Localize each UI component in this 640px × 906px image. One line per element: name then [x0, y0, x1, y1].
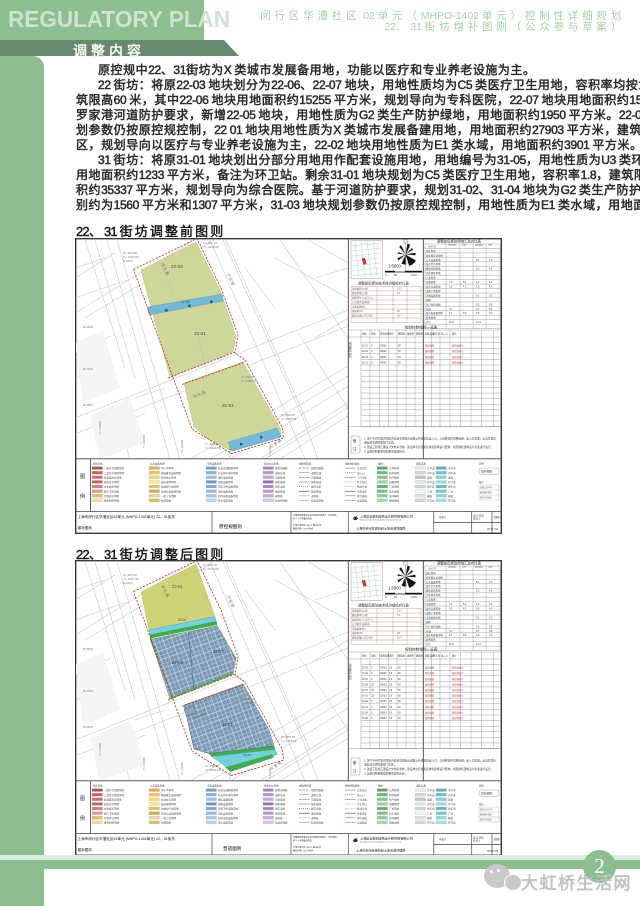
svg-text:社会停车场库用地: 社会停车场库用地 — [218, 471, 239, 475]
svg-text:制图人: 制图人 — [494, 837, 502, 841]
svg-text:娱乐康体用地: 娱乐康体用地 — [161, 480, 177, 484]
svg-text:商业办公用地: 商业办公用地 — [264, 462, 279, 466]
svg-text:支路: 支路 — [448, 797, 454, 801]
svg-text:22-01: 22-01 — [194, 331, 206, 336]
svg-text:苗圃用地: 苗圃用地 — [389, 802, 400, 806]
svg-text:规划控制要素: 规划控制要素 — [345, 462, 360, 466]
svg-text:广场: 广场 — [448, 811, 454, 815]
svg-text:公共通道: 公共通道 — [357, 499, 368, 503]
svg-text:仓储用地: 仓储用地 — [426, 280, 436, 284]
svg-text:上海市闵行区规划和土地资源管理局: 上海市闵行区规划和土地资源管理局 — [356, 526, 406, 531]
svg-text:道路交通: 道路交通 — [416, 784, 426, 788]
svg-text:滨河绿地: 滨河绿地 — [389, 494, 400, 498]
svg-text:地块界线: 地块界线 — [311, 811, 322, 815]
svg-text:T-13400: T-13400 — [228, 768, 232, 779]
svg-text:24903: 24903 — [380, 362, 387, 364]
svg-text:市政设施用地: 市政设施用地 — [426, 615, 441, 619]
svg-text:31-05: 31-05 — [362, 718, 369, 720]
svg-text:居住用地: 居住用地 — [426, 571, 436, 575]
svg-text:排水设施用地: 排水设施用地 — [218, 499, 234, 503]
svg-text:31-04: 31-04 — [362, 712, 369, 714]
svg-text:规划范围线: 规划范围线 — [275, 466, 288, 470]
svg-text:城市发展备用地: 城市发展备用地 — [426, 311, 443, 315]
svg-text:制图人: 制图人 — [494, 515, 502, 519]
svg-text:用地面积(公顷): 用地面积(公顷) — [352, 287, 368, 291]
svg-text:Shanghai Fudan Planning Archit: Shanghai Fudan Planning Architectural De… — [360, 519, 401, 522]
svg-text:市政设施用地: 市政设施用地 — [207, 784, 222, 788]
svg-text:22-04: 22-04 — [178, 618, 186, 622]
svg-text:环卫站: 环卫站 — [448, 821, 456, 825]
svg-text:上海市闵行区华漕社区02单元 (MHPO-1402单元) 2: 上海市闵行区华漕社区02单元 (MHPO-1402单元) 22、31街坊 — [78, 836, 176, 841]
svg-text:100m: 100m — [411, 595, 418, 599]
svg-text:备注: 备注 — [479, 802, 484, 806]
svg-text:B-2800: B-2800 — [83, 725, 93, 729]
svg-text:1. 地下空间开发时须结合轨道交通站点设置公共通道及出入口，: 1. 地下空间开发时须结合轨道交通站点设置公共通道及出入口，与地铁站厅层相连通，… — [364, 437, 496, 441]
svg-text:建设用地(公顷): 建设用地(公顷) — [352, 613, 368, 617]
svg-text:绿地率(%): 绿地率(%) — [352, 631, 363, 635]
svg-text:非机动车: 非机动车 — [357, 811, 368, 815]
svg-text:二类住宅组团用地: 二类住宅组团用地 — [104, 471, 125, 475]
svg-text:主干道: 主干道 — [448, 466, 456, 470]
svg-text:市政设施用地: 市政设施用地 — [207, 462, 222, 466]
svg-text:河道蓝线: 河道蓝线 — [275, 475, 286, 479]
svg-text:2. 建设工程施工图设计文件审查前，建设单位应当落实绿色建筑: 2. 建设工程施工图设计文件审查前，建设单位应当落实绿色建筑设计要求，按照绿色建… — [364, 445, 493, 449]
svg-text:绿化绿线: 绿化绿线 — [275, 802, 286, 806]
svg-text:Y=-3485.74: Y=-3485.74 — [241, 701, 257, 705]
svg-text:普适图则: 普适图则 — [223, 845, 242, 852]
svg-text:附属绿地: 附属绿地 — [389, 499, 400, 503]
svg-text:高压走廊: 高压走廊 — [275, 807, 286, 811]
svg-text:行政办公用地: 行政办公用地 — [104, 816, 120, 820]
svg-text:31-03: 31-03 — [362, 707, 369, 709]
svg-text:枢纽: 枢纽 — [448, 816, 454, 820]
svg-text:附属绿地: 附属绿地 — [389, 821, 400, 825]
svg-text:绿化绿线: 绿化绿线 — [311, 480, 322, 484]
svg-text:出入口: 出入口 — [357, 793, 365, 797]
svg-text:医疗卫生用地: 医疗卫生用地 — [104, 811, 120, 815]
svg-text:公共设施用地: 公共设施用地 — [150, 784, 165, 788]
svg-text:2017.08: 2017.08 — [487, 849, 498, 853]
svg-text:供应设施用地: 供应设施用地 — [218, 475, 234, 479]
svg-text:出入口: 出入口 — [357, 471, 365, 475]
svg-text:B-2700: B-2700 — [83, 367, 93, 371]
svg-text:枢纽: 枢纽 — [427, 494, 433, 498]
svg-text:轨道控制线: 轨道控制线 — [311, 821, 324, 825]
svg-text:其他市政设施用地: 其他市政设施用地 — [218, 494, 239, 498]
svg-text:规划控制线: 规划控制线 — [299, 784, 312, 788]
svg-text:消防设施用地: 消防设施用地 — [218, 489, 234, 493]
svg-text:图: 图 — [80, 796, 85, 802]
svg-text:加油加气站用地: 加油加气站用地 — [161, 807, 179, 811]
svg-text:支路: 支路 — [427, 797, 433, 801]
svg-text:公交站点: 公交站点 — [357, 466, 368, 470]
svg-text:Shanghai Fudan Planning Archit: Shanghai Fudan Planning Architectural De… — [360, 841, 401, 844]
svg-text:轨道控制线: 轨道控制线 — [311, 499, 324, 503]
svg-text:询轨道交通管理部门意见。: 询轨道交通管理部门意见。 — [364, 763, 396, 767]
svg-text:18903: 18903 — [380, 718, 387, 720]
svg-text:生产绿地: 生产绿地 — [389, 475, 400, 479]
svg-text:商业办公用地: 商业办公用地 — [161, 797, 177, 801]
svg-text:审核人: 审核人 — [439, 515, 447, 519]
svg-text:22-01: 22-01 — [362, 346, 369, 348]
svg-text:苗圃用地: 苗圃用地 — [389, 480, 400, 484]
svg-text:非机动车: 非机动车 — [357, 489, 368, 493]
svg-text:对外交通用地: 对外交通用地 — [426, 607, 441, 611]
svg-text:街头绿地: 街头绿地 — [389, 811, 400, 815]
svg-text:广场用地: 广场用地 — [389, 485, 400, 489]
svg-text:社会停车场库用地: 社会停车场库用地 — [218, 793, 239, 797]
svg-text:上海市闵行区规划和土地资源管理局: 上海市闵行区规划和土地资源管理局 — [356, 848, 406, 853]
svg-text:轨道控制线: 轨道控制线 — [275, 499, 288, 503]
svg-text:环卫站: 环卫站 — [427, 499, 435, 503]
svg-text:工业用地: 工业用地 — [426, 276, 436, 280]
svg-text:禁止开口: 禁止开口 — [357, 480, 368, 484]
svg-text:地下通道: 地下通道 — [357, 494, 368, 498]
svg-text:仓储用地: 仓储用地 — [426, 602, 436, 606]
svg-text:一类工业用地: 一类工业用地 — [161, 816, 177, 820]
svg-text:道路红线: 道路红线 — [275, 471, 286, 475]
svg-text:22903: 22903 — [380, 696, 387, 698]
svg-text:生产防护绿地: 生产防护绿地 — [426, 302, 441, 306]
svg-text:26903: 26903 — [380, 351, 387, 353]
svg-text:63.7: 63.7 — [397, 637, 402, 640]
svg-text:100m: 100m — [411, 273, 418, 277]
svg-text:Y=-3443.89: Y=-3443.89 — [203, 245, 219, 249]
svg-text:教育科研用地: 教育科研用地 — [426, 267, 441, 271]
svg-text:31-01: 31-01 — [362, 696, 369, 698]
svg-text:邮政设施用地: 邮政设施用地 — [218, 802, 234, 806]
svg-text:停车场: 停车场 — [427, 807, 435, 811]
svg-text:一类工业用地: 一类工业用地 — [161, 494, 177, 498]
svg-text:增补图则: 增补图则 — [481, 470, 492, 474]
svg-text:规划控制线: 规划控制线 — [299, 462, 312, 466]
svg-text:教育科研用地: 教育科研用地 — [426, 589, 441, 593]
svg-text:供应设施用地: 供应设施用地 — [218, 797, 234, 801]
svg-text:仓储用地: 仓储用地 — [161, 821, 172, 825]
svg-text:人行过街: 人行过街 — [357, 797, 368, 801]
svg-text:例: 例 — [80, 815, 85, 822]
svg-text:防护绿地: 防护绿地 — [389, 471, 400, 475]
svg-text:22-04: 22-04 — [362, 673, 369, 675]
svg-text:市政设施(处): 市政设施(处) — [352, 627, 366, 631]
svg-text:规划控制要素: 规划控制要素 — [345, 784, 360, 788]
svg-text:公共设施用地: 公共设施用地 — [150, 462, 165, 466]
svg-text:其他用地: 其他用地 — [426, 316, 436, 320]
svg-text:规划范围线: 规划范围线 — [275, 788, 288, 792]
svg-text:备注: 备注 — [479, 480, 484, 484]
svg-text:加油加气站用地: 加油加气站用地 — [161, 485, 179, 489]
svg-text:工业用地: 工业用地 — [426, 598, 436, 602]
svg-text:广场用地: 广场用地 — [389, 807, 400, 811]
svg-text:31-01: 31-01 — [222, 722, 233, 727]
svg-text:其他: 其他 — [479, 784, 484, 788]
svg-text:22-04: 22-04 — [181, 300, 190, 304]
svg-text:负责人: 负责人 — [473, 839, 481, 843]
svg-text:规划常住人口(万人): 规划常住人口(万人) — [352, 618, 373, 622]
svg-text:其他公共设施用地: 其他公共设施用地 — [161, 489, 182, 493]
svg-text:公共设施用地: 公共设施用地 — [426, 258, 441, 262]
svg-text:次干道: 次干道 — [427, 471, 435, 475]
svg-text:滨河绿地: 滨河绿地 — [389, 816, 400, 820]
svg-text:支路: 支路 — [448, 475, 454, 479]
svg-text:增补图则: 增补图则 — [78, 847, 93, 852]
svg-text:22-03: 22-03 — [362, 357, 369, 359]
svg-text:绿地率(%): 绿地率(%) — [352, 309, 363, 313]
svg-text:主干道: 主干道 — [448, 788, 456, 792]
svg-text:13.1: 13.1 — [397, 288, 402, 291]
svg-text:审核人: 审核人 — [439, 837, 447, 841]
svg-text:绿地: 绿地 — [378, 784, 383, 788]
svg-text:文化体育用地: 文化体育用地 — [426, 271, 441, 275]
svg-text:1:5000: 1:5000 — [388, 264, 401, 269]
svg-text:文化体育用地: 文化体育用地 — [426, 593, 441, 597]
svg-text:消防设施用地: 消防设施用地 — [218, 811, 234, 815]
svg-text:步行道: 步行道 — [427, 802, 435, 806]
svg-text:河道蓝线: 河道蓝线 — [311, 475, 322, 479]
svg-text:B-2700: B-2700 — [83, 689, 93, 693]
svg-text:31-02: 31-02 — [362, 701, 369, 703]
svg-text:Y=-3443.58: Y=-3443.58 — [205, 768, 221, 772]
svg-text:Y=-3485.74: Y=-3485.74 — [241, 379, 257, 383]
svg-text:文化娱乐用地: 文化娱乐用地 — [104, 807, 120, 811]
svg-text:绿地: 绿地 — [426, 620, 431, 624]
svg-text:居住用地: 居住用地 — [426, 249, 436, 253]
svg-text:枢纽: 枢纽 — [427, 816, 433, 820]
svg-text:退界线: 退界线 — [275, 494, 283, 498]
svg-text:规划范围线: 规划范围线 — [311, 788, 324, 792]
svg-text:31-01: 31-01 — [362, 362, 369, 364]
svg-text:绿地: 绿地 — [378, 462, 383, 466]
svg-text:商办综合用地: 商办综合用地 — [104, 480, 120, 484]
svg-text:道路红线: 道路红线 — [311, 793, 322, 797]
svg-text:商业服务业用地: 商业服务业用地 — [426, 575, 443, 579]
svg-text:二类住宅组团用地: 二类住宅组团用地 — [104, 793, 125, 797]
svg-text:31-01: 31-01 — [222, 403, 234, 408]
svg-text:一类住宅组团用地: 一类住宅组团用地 — [104, 788, 125, 792]
svg-text:街头绿地: 街头绿地 — [389, 489, 400, 493]
svg-text:退界线: 退界线 — [311, 494, 319, 498]
svg-text:退界线: 退界线 — [311, 816, 319, 820]
svg-text:医疗卫生用地: 医疗卫生用地 — [104, 489, 120, 493]
svg-text:生产绿地: 生产绿地 — [389, 797, 400, 801]
svg-text:教育科研用地: 教育科研用地 — [104, 499, 120, 503]
svg-text:绿化绿线: 绿化绿线 — [311, 802, 322, 806]
svg-text:Y=-3464.62: Y=-3464.62 — [281, 417, 297, 421]
svg-text:3. 其他控制要求按照相关规范执行。: 3. 其他控制要求按照相关规范执行。 — [364, 450, 407, 454]
svg-text:其他用地: 其他用地 — [426, 638, 436, 642]
svg-text:B-2500: B-2500 — [83, 647, 93, 651]
svg-text:Y=-13600: Y=-13600 — [180, 762, 184, 775]
svg-text:停车场: 停车场 — [448, 807, 456, 811]
svg-text:广场: 广场 — [427, 811, 433, 815]
svg-text:T-13400: T-13400 — [228, 446, 232, 457]
svg-text:负责人: 负责人 — [473, 517, 481, 521]
svg-text:26903: 26903 — [380, 673, 387, 675]
svg-text:用地面积(公顷): 用地面积(公顷) — [352, 609, 368, 613]
svg-text:商业办公用地: 商业办公用地 — [161, 475, 177, 479]
svg-text:河道蓝线: 河道蓝线 — [311, 797, 322, 801]
svg-text:广场: 广场 — [427, 489, 433, 493]
svg-text:Y=-14000: Y=-14000 — [98, 743, 102, 756]
svg-text:22-05: 22-05 — [362, 679, 369, 681]
svg-text:B-2402: B-2402 — [123, 581, 133, 585]
svg-text:合计: 合计 — [426, 320, 431, 324]
svg-text:停车场: 停车场 — [427, 485, 435, 489]
svg-text:枢纽: 枢纽 — [448, 494, 454, 498]
svg-text:文化娱乐用地: 文化娱乐用地 — [104, 485, 120, 489]
svg-text:22-01: 22-01 — [362, 668, 369, 670]
svg-text:中小学用地: 中小学用地 — [161, 788, 174, 792]
svg-text:规划控制指标: 规划控制指标 — [348, 663, 352, 680]
svg-text:规划控制指标一览表: 规划控制指标一览表 — [405, 325, 438, 330]
svg-text:禁止开口: 禁止开口 — [357, 802, 368, 806]
svg-text:公共绿地: 公共绿地 — [389, 788, 400, 792]
svg-text:22-02: 22-02 — [362, 351, 369, 353]
svg-text:公交站点: 公交站点 — [357, 788, 368, 792]
svg-text:步行道: 步行道 — [427, 480, 435, 484]
svg-text:道路交通: 道路交通 — [416, 462, 426, 466]
svg-text:规划控制指标一览表: 规划控制指标一览表 — [405, 647, 438, 652]
svg-text:中小学用地: 中小学用地 — [161, 466, 174, 470]
svg-text:地块界线: 地块界线 — [275, 489, 286, 493]
svg-text:居住用地: 居住用地 — [93, 462, 103, 466]
svg-text:其他: 其他 — [479, 462, 484, 466]
svg-text:次干道: 次干道 — [427, 793, 435, 797]
svg-text:河道蓝线: 河道蓝线 — [275, 797, 286, 801]
svg-text:主干道: 主干道 — [427, 788, 435, 792]
svg-text:绿地: 绿地 — [426, 298, 431, 302]
svg-text:其他公共设施用地: 其他公共设施用地 — [161, 811, 182, 815]
svg-text:商业服务业用地: 商业服务业用地 — [426, 253, 443, 257]
svg-text:居住用地: 居住用地 — [93, 784, 103, 788]
svg-text:20903: 20903 — [380, 707, 387, 709]
svg-text:13.1: 13.1 — [397, 610, 402, 613]
svg-text:25903: 25903 — [380, 357, 387, 359]
svg-text:Y=-13800: Y=-13800 — [142, 757, 146, 770]
svg-text:建筑总量(万平方米): 建筑总量(万平方米) — [352, 314, 373, 318]
svg-text:行政办公用地: 行政办公用地 — [104, 494, 120, 498]
svg-text:机动车位: 机动车位 — [357, 807, 368, 811]
svg-text:商业办公用地: 商业办公用地 — [264, 784, 279, 788]
svg-text:步行道: 步行道 — [448, 480, 456, 484]
svg-text:仓储用地: 仓储用地 — [161, 499, 172, 503]
svg-text:27903: 27903 — [380, 346, 387, 348]
svg-text:16.6: 16.6 — [449, 643, 454, 646]
svg-text:环境卫生设施用地: 环境卫生设施用地 — [218, 485, 239, 489]
svg-text:步行道: 步行道 — [448, 802, 456, 806]
svg-text:63.7: 63.7 — [397, 315, 402, 318]
svg-text:地下通道: 地下通道 — [357, 816, 368, 820]
svg-text:生产防护绿地: 生产防护绿地 — [426, 624, 441, 628]
svg-text:基础教育设施用地: 基础教育设施用地 — [161, 471, 182, 475]
svg-text:防护绿地: 防护绿地 — [389, 793, 400, 797]
svg-text:教育科研用地: 教育科研用地 — [104, 821, 120, 825]
svg-text:水域: 水域 — [426, 629, 431, 633]
svg-text:规划控制指标: 规划控制指标 — [348, 341, 352, 358]
svg-text:22-07: 22-07 — [362, 690, 369, 692]
svg-text:高压走廊: 高压走廊 — [275, 485, 286, 489]
svg-text:环卫站: 环卫站 — [427, 821, 435, 825]
svg-text:地块界线: 地块界线 — [311, 489, 322, 493]
svg-text:市政设施用地: 市政设施用地 — [426, 293, 441, 297]
svg-text:建筑总量(万平方米): 建筑总量(万平方米) — [352, 636, 373, 640]
svg-text:对外交通用地: 对外交通用地 — [426, 285, 441, 289]
svg-text:14.4: 14.4 — [476, 321, 481, 324]
svg-text:商业服务业用地: 商业服务业用地 — [104, 797, 122, 801]
svg-text:B-2402: B-2402 — [123, 259, 133, 263]
svg-text:人行过街: 人行过街 — [357, 475, 368, 479]
svg-text:地块界线: 地块界线 — [275, 811, 286, 815]
svg-text:主干道: 主干道 — [427, 466, 435, 470]
svg-text:1:5000: 1:5000 — [388, 586, 401, 591]
svg-text:上海市闵行区华漕社区02单元 (MHPO-1402单元) 2: 上海市闵行区华漕社区02单元 (MHPO-1402单元) 22、31街坊 — [78, 514, 176, 519]
svg-text:询轨道交通管理部门意见。: 询轨道交通管理部门意见。 — [364, 441, 396, 445]
svg-text:一类住宅组团用地: 一类住宅组团用地 — [104, 466, 125, 470]
svg-text:22-01: 22-01 — [172, 584, 183, 589]
svg-text:环卫站: 环卫站 — [448, 499, 456, 503]
svg-text:广场: 广场 — [448, 489, 454, 493]
svg-text:次干道: 次干道 — [448, 793, 456, 797]
svg-text:Y=-3464.62: Y=-3464.62 — [281, 739, 297, 743]
svg-text:合计: 合计 — [426, 642, 431, 646]
svg-text:Y=-3443.58: Y=-3443.58 — [205, 446, 221, 450]
svg-text:22-06: 22-06 — [172, 660, 183, 665]
svg-text:道路广场用地: 道路广场用地 — [426, 611, 441, 615]
svg-text:上海复旦规划建筑设计研究院有限公司: 上海复旦规划建筑设计研究院有限公司 — [360, 514, 413, 519]
svg-text:环境卫生设施用地: 环境卫生设施用地 — [218, 807, 239, 811]
svg-text:上海复旦规划建筑设计研究院有限公司: 上海复旦规划建筑设计研究院有限公司 — [360, 836, 413, 841]
svg-text:B-2800: B-2800 — [83, 403, 93, 407]
svg-text:调整前后规划用地汇总对比表: 调整前后规划用地汇总对比表 — [437, 561, 482, 566]
svg-text:医疗卫生用地: 医疗卫生用地 — [426, 584, 441, 588]
svg-text:娱乐康体用地: 娱乐康体用地 — [161, 802, 177, 806]
svg-text:图: 图 — [80, 474, 85, 480]
svg-text:19903: 19903 — [380, 712, 387, 714]
svg-text:公共服务设施(处): 公共服务设施(处) — [352, 622, 371, 626]
svg-text:基础教育设施用地: 基础教育设施用地 — [161, 793, 182, 797]
svg-text:商办综合用地: 商办综合用地 — [104, 802, 120, 806]
svg-text:公共服务设施(处): 公共服务设施(处) — [352, 300, 371, 304]
svg-text:21903: 21903 — [380, 701, 387, 703]
svg-text:23903: 23903 — [380, 690, 387, 692]
svg-text:增补图则: 增补图则 — [481, 792, 492, 796]
svg-text:轨道交通线路用地: 轨道交通线路用地 — [218, 466, 239, 470]
svg-text:轨道交通线路用地: 轨道交通线路用地 — [218, 788, 239, 792]
svg-text:22-07: 22-07 — [213, 649, 224, 654]
svg-text:16.6: 16.6 — [449, 321, 454, 324]
svg-text:建设用地(公顷): 建设用地(公顷) — [352, 291, 368, 295]
svg-text:调整前后规划技术经济指标对比表: 调整前后规划技术经济指标对比表 — [358, 281, 409, 286]
svg-text:2. 建设工程施工图设计文件审查前，建设单位应当落实绿色建筑: 2. 建设工程施工图设计文件审查前，建设单位应当落实绿色建筑设计要求，按照绿色建… — [364, 767, 493, 771]
svg-text:27903: 27903 — [380, 668, 387, 670]
svg-text:22-06: 22-06 — [362, 684, 369, 686]
svg-text:B-2500: B-2500 — [83, 325, 93, 329]
svg-text:停车场: 停车场 — [448, 485, 456, 489]
svg-text:排水设施用地: 排水设施用地 — [218, 821, 234, 825]
svg-text:公共设施用地: 公共设施用地 — [426, 580, 441, 584]
svg-text:1. 地下空间开发时须结合轨道交通站点设置公共通道及出入口，: 1. 地下空间开发时须结合轨道交通站点设置公共通道及出入口，与地铁站厅层相连通，… — [364, 759, 496, 763]
svg-text:高压走廊: 高压走廊 — [311, 807, 322, 811]
svg-text:Y=-3443.89: Y=-3443.89 — [203, 567, 219, 571]
svg-text:原控规图则: 原控规图则 — [219, 523, 242, 530]
svg-text:道路红线: 道路红线 — [275, 793, 286, 797]
svg-text:2017.08: 2017.08 — [487, 527, 498, 531]
svg-text:14.4: 14.4 — [476, 643, 481, 646]
svg-text:调整前后规划技术经济指标对比表: 调整前后规划技术经济指标对比表 — [358, 603, 409, 608]
svg-text:轨道控制线: 轨道控制线 — [275, 821, 288, 825]
svg-text:24903: 24903 — [380, 684, 387, 686]
svg-text:增补图则: 增补图则 — [78, 525, 93, 530]
